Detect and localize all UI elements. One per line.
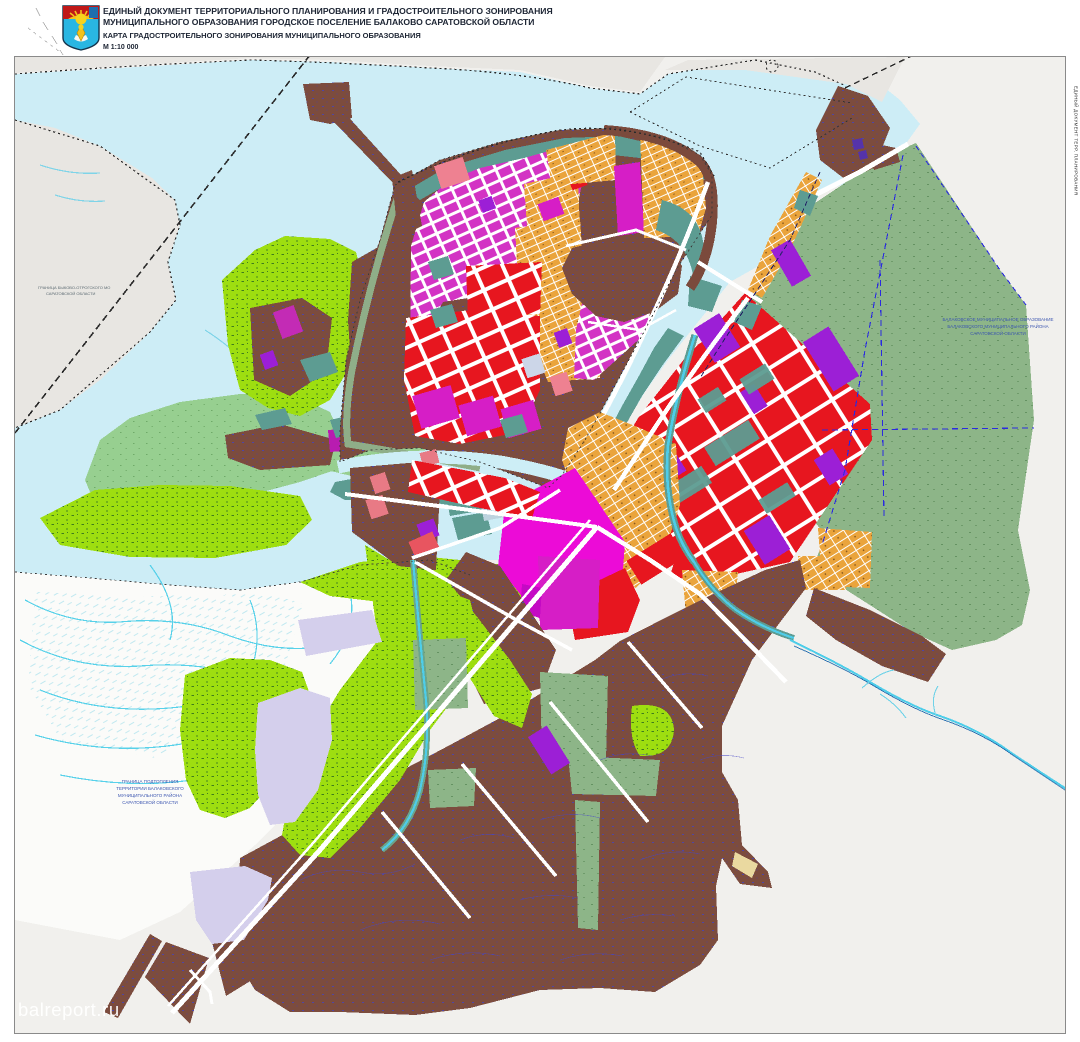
svg-text:ТЕРРИТОРИИ БАЛАКОВСКОГО: ТЕРРИТОРИИ БАЛАКОВСКОГО <box>116 786 184 791</box>
svg-text:ГРАНИЦА БЫКОВО-ОТРОГСКОГО МО: ГРАНИЦА БЫКОВО-ОТРОГСКОГО МО <box>38 285 110 290</box>
svg-text:БАЛАКОВСКОЕ МУНИЦИПАЛЬНОЕ ОБРА: БАЛАКОВСКОЕ МУНИЦИПАЛЬНОЕ ОБРАЗОВАНИЕ <box>943 317 1054 322</box>
svg-text:САРАТОВСКОЙ ОБЛАСТИ: САРАТОВСКОЙ ОБЛАСТИ <box>122 798 178 805</box>
svg-text:САРАТОВСКОЙ ОБЛАСТИ: САРАТОВСКОЙ ОБЛАСТИ <box>970 329 1026 336</box>
svg-text:САРАТОВСКОЙ ОБЛАСТИ: САРАТОВСКОЙ ОБЛАСТИ <box>46 291 96 296</box>
svg-text:ЕДИНЫЙ ДОКУМЕНТ ТЕРР. ПЛАНИРОВ: ЕДИНЫЙ ДОКУМЕНТ ТЕРР. ПЛАНИРОВАНИЯ <box>1074 86 1079 195</box>
svg-text:ГРАНИЦА ПОДТОПЛЕНИЯ: ГРАНИЦА ПОДТОПЛЕНИЯ <box>122 779 179 784</box>
svg-text:БАЛАКОВСКОГО МУНИЦИПАЛЬНОГО РА: БАЛАКОВСКОГО МУНИЦИПАЛЬНОГО РАЙОНА <box>947 322 1048 329</box>
svg-text:МУНИЦИПАЛЬНОГО РАЙОНА: МУНИЦИПАЛЬНОГО РАЙОНА <box>118 791 182 798</box>
